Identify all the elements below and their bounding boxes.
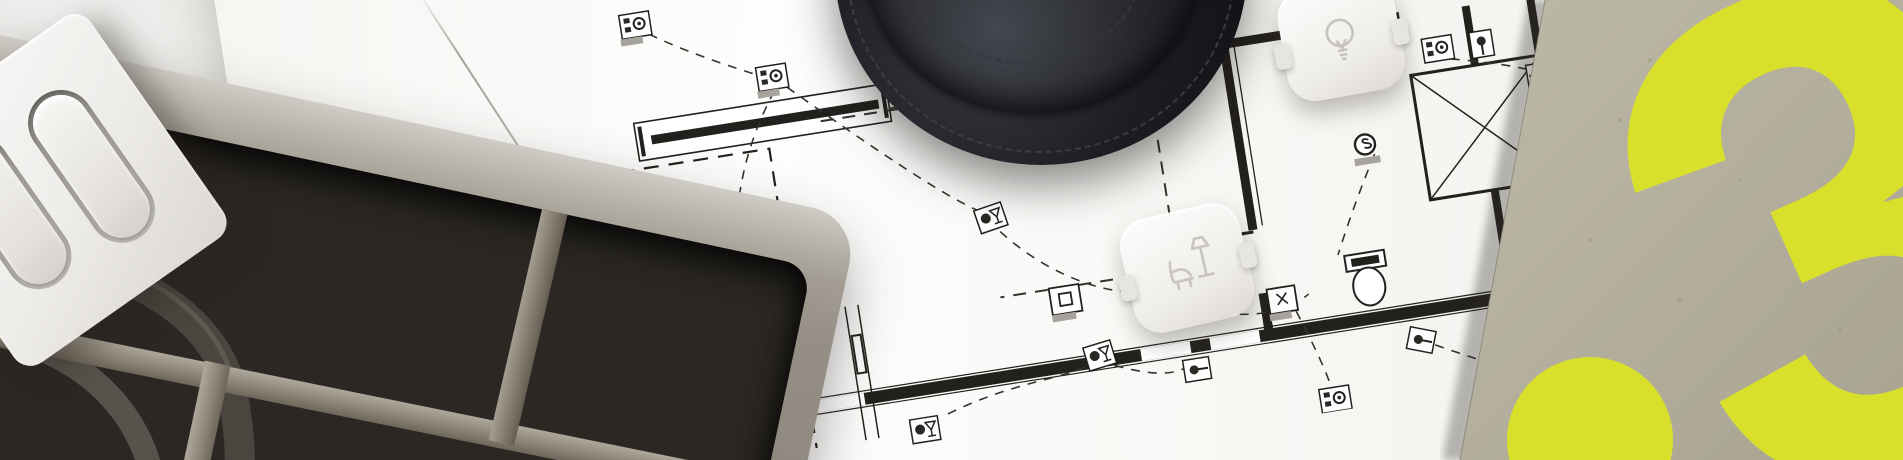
plan-symbol bbox=[617, 11, 653, 47]
plan-symbol bbox=[974, 202, 1008, 234]
button-tab bbox=[1273, 42, 1293, 70]
photo-stage: 3 bbox=[0, 0, 1903, 460]
plan-symbol bbox=[1406, 327, 1436, 354]
plan-toilet bbox=[1344, 250, 1392, 309]
plan-symbol bbox=[1183, 357, 1212, 383]
plan-symbol bbox=[909, 416, 940, 444]
lightbulb-icon bbox=[1305, 4, 1377, 76]
kraft-booklet-cover: 3 bbox=[1440, 0, 1903, 460]
armchair-icon bbox=[1144, 225, 1230, 311]
stitching-ring bbox=[908, 0, 1144, 64]
plan-symbol bbox=[1048, 284, 1084, 322]
plan-symbol bbox=[1265, 285, 1299, 321]
plan-symbol bbox=[1351, 133, 1381, 167]
plan-symbol bbox=[1083, 340, 1117, 371]
plan-symbol bbox=[754, 63, 790, 99]
plan-symbol bbox=[1319, 385, 1352, 413]
